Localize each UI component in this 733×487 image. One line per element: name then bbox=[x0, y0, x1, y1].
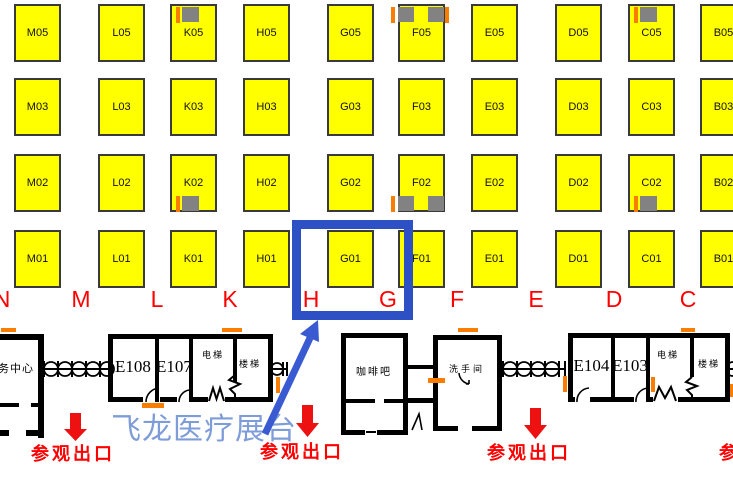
room-label-elevator-east: 电梯 bbox=[649, 348, 687, 361]
booth-marker-gray bbox=[428, 7, 444, 22]
exit-label-1: 参观出口 bbox=[31, 440, 115, 466]
exit-label-4: 参观出口 bbox=[719, 439, 733, 465]
booth-l03: L03 bbox=[98, 78, 145, 136]
booth-marker-orange bbox=[391, 7, 395, 23]
booth-e01: E01 bbox=[471, 230, 518, 288]
room-label-stairs-east: 楼梯 bbox=[692, 357, 726, 370]
column-letter-l: L bbox=[151, 286, 164, 313]
booth-b05: B05 bbox=[700, 4, 733, 62]
room-label-restroom: 洗手间 bbox=[437, 362, 497, 375]
booth-marker-gray bbox=[640, 196, 657, 211]
booth-marker-orange bbox=[634, 7, 638, 23]
booth-marker-orange bbox=[445, 7, 449, 23]
room-label-elevator-west: 电梯 bbox=[193, 348, 233, 361]
column-letter-m: M bbox=[71, 286, 90, 313]
booth-callout-text: 飞龙医疗展台 bbox=[111, 404, 297, 448]
booth-l05: L05 bbox=[98, 4, 145, 62]
booth-m02: M02 bbox=[14, 154, 61, 212]
column-letter-k: K bbox=[222, 286, 237, 313]
booth-m01: M01 bbox=[14, 230, 61, 288]
booth-marker-orange bbox=[176, 7, 180, 23]
exit-label-3: 参观出口 bbox=[487, 439, 571, 465]
walls bbox=[0, 333, 730, 438]
room-label-e103: E103 bbox=[612, 356, 647, 376]
column-letter-e: E bbox=[528, 286, 543, 313]
room-label-e104: E104 bbox=[571, 356, 612, 376]
room-label-cafe: 咖啡吧 bbox=[345, 363, 403, 378]
column-letter-f: F bbox=[450, 286, 464, 313]
booth-d03: D03 bbox=[555, 78, 602, 136]
booth-m03: M03 bbox=[14, 78, 61, 136]
booth-h05: H05 bbox=[243, 4, 290, 62]
booth-k03: K03 bbox=[170, 78, 217, 136]
booth-marker-gray bbox=[398, 196, 414, 211]
booth-g02: G02 bbox=[327, 154, 374, 212]
booth-l01: L01 bbox=[98, 230, 145, 288]
booth-f03: F03 bbox=[398, 78, 445, 136]
booth-c01: C01 bbox=[628, 230, 675, 288]
booth-g05: G05 bbox=[327, 4, 374, 62]
booth-marker-gray bbox=[428, 196, 444, 211]
booth-marker-gray bbox=[398, 7, 414, 22]
booth-marker-orange bbox=[634, 196, 638, 212]
booth-d01: D01 bbox=[555, 230, 602, 288]
highlight-box-g01 bbox=[292, 220, 413, 320]
room-label-stairs-west: 楼梯 bbox=[232, 357, 268, 370]
booth-m05: M05 bbox=[14, 4, 61, 62]
booth-marker-gray bbox=[182, 196, 199, 211]
booth-c03: C03 bbox=[628, 78, 675, 136]
booth-d02: D02 bbox=[555, 154, 602, 212]
column-letter-d: D bbox=[606, 286, 623, 313]
booth-e02: E02 bbox=[471, 154, 518, 212]
booth-b01: B01 bbox=[700, 230, 733, 288]
booth-b03: B03 bbox=[700, 78, 733, 136]
booth-marker-gray bbox=[640, 7, 657, 22]
room-label-e107: E107 bbox=[156, 357, 190, 377]
booth-marker-gray bbox=[182, 7, 199, 22]
exhibition-floor-plan: M05L05K05H05G05F05E05D05C05B05M03L03K03H… bbox=[0, 0, 733, 487]
booth-d05: D05 bbox=[555, 4, 602, 62]
room-label-e108: E108 bbox=[111, 357, 155, 377]
booth-marker-orange bbox=[176, 196, 180, 212]
booth-b02: B02 bbox=[700, 154, 733, 212]
booth-g03: G03 bbox=[327, 78, 374, 136]
room-label-service-center: 务中心 bbox=[0, 360, 34, 376]
booth-e03: E03 bbox=[471, 78, 518, 136]
booth-marker-orange bbox=[391, 196, 395, 212]
booth-e05: E05 bbox=[471, 4, 518, 62]
booth-h01: H01 bbox=[243, 230, 290, 288]
column-letter-n: N bbox=[0, 286, 10, 313]
booth-h02: H02 bbox=[243, 154, 290, 212]
booth-h03: H03 bbox=[243, 78, 290, 136]
booth-l02: L02 bbox=[98, 154, 145, 212]
booth-k01: K01 bbox=[170, 230, 217, 288]
column-letter-c: C bbox=[680, 286, 697, 313]
